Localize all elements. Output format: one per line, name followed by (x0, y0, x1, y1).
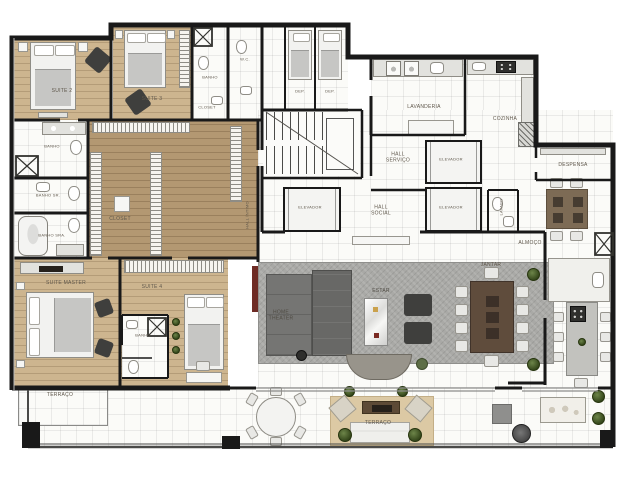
room-label-elevador-social-1: ELEVADOR (298, 206, 322, 211)
plant (592, 412, 605, 425)
room-label-banho-sra: BANHO SRA. (38, 234, 65, 239)
wardrobe (179, 30, 190, 88)
pillow (34, 45, 54, 56)
sink (36, 182, 50, 192)
bed (30, 42, 76, 110)
bed (124, 30, 166, 88)
island-cooktop (570, 306, 586, 322)
stool (600, 312, 611, 322)
plant (527, 268, 540, 281)
blanket (128, 53, 162, 85)
desk (186, 372, 222, 383)
plant (527, 358, 540, 371)
chair (550, 178, 563, 188)
room-label-closet-suite-3: CLOSET (198, 106, 216, 111)
pillow (29, 328, 40, 356)
toilet (68, 186, 80, 201)
plant (408, 428, 422, 442)
room-label-estar: ESTAR (372, 289, 390, 295)
pillow (206, 297, 224, 308)
stool (574, 378, 588, 388)
room-label-elevador-social-2: ELEVADOR (439, 206, 463, 211)
blanket (188, 324, 220, 366)
washer (386, 61, 401, 76)
room-label-dep-2: DEP. (325, 90, 335, 95)
decor (374, 333, 379, 338)
hall-console (352, 236, 410, 245)
centerpiece (486, 312, 499, 323)
stool (600, 332, 611, 342)
plant (397, 386, 408, 397)
staircase (263, 110, 360, 176)
dryer (404, 61, 419, 76)
floor-lamp (296, 350, 307, 361)
chair (455, 340, 468, 352)
plant (172, 332, 180, 340)
barbecue-counter (540, 397, 586, 423)
bowl (578, 338, 586, 346)
room-label-dep-1: DEP. (295, 90, 305, 95)
sink (503, 216, 514, 227)
placemat (573, 197, 583, 207)
room-label-despensa: DESPENSA (558, 163, 587, 169)
room-label-suite-master: SUITE MASTER (46, 281, 86, 287)
room-label-jantar: JANTAR (481, 263, 502, 269)
single-bed (318, 30, 342, 80)
tv-panel (252, 266, 258, 312)
pantry-shelf (540, 148, 606, 155)
room-label-suite-3: SUITE 3 (142, 97, 163, 103)
room-label-banho-sr: BANHO SR. (36, 194, 60, 199)
pillow (127, 33, 146, 43)
pillow (55, 45, 75, 56)
desk-chair (196, 361, 210, 371)
stool (600, 352, 611, 362)
bed (26, 292, 94, 358)
chair (550, 231, 563, 241)
room-label-elevador-servico: ELEVADOR (439, 158, 463, 163)
room-label-banho-suite-2: BANHO (44, 145, 59, 150)
toilet (128, 360, 139, 374)
nightstand (18, 42, 28, 52)
terrace-round-table (256, 397, 296, 437)
toilet (198, 56, 209, 70)
room-label-banho-suite-3: BANHO (202, 76, 217, 81)
room-label-cozinha: COZINHA (493, 117, 517, 123)
kitchen-sink (472, 62, 486, 71)
decor (373, 307, 378, 312)
toilet (68, 218, 80, 233)
blanket (54, 298, 91, 352)
terrace-cabinet (492, 404, 512, 424)
coffee-table (364, 298, 388, 346)
dining-table (470, 281, 514, 353)
nightstand (115, 30, 123, 39)
bed-bench (38, 112, 68, 118)
laundry-sink (430, 62, 444, 74)
wardrobe (124, 260, 224, 273)
grill (512, 424, 531, 443)
room-label-suite-4: SUITE 4 (142, 285, 163, 291)
nightstand (78, 42, 88, 52)
armchair (404, 322, 432, 344)
stair-treads (266, 146, 324, 174)
stair-treads (266, 112, 324, 140)
placemat (553, 213, 563, 223)
breakfast-table (546, 189, 588, 229)
chair (570, 231, 583, 241)
kitchen-counter-side (521, 77, 534, 127)
chair (270, 437, 282, 446)
room-label-almoco: ALMOÇO (518, 241, 541, 247)
wardrobe (92, 122, 190, 133)
tv (372, 405, 392, 412)
room-label-hall-servico: HALL SERVIÇO (382, 152, 414, 164)
pillow (29, 297, 40, 325)
stair-landing (326, 118, 354, 170)
chair (516, 286, 529, 298)
double-vanity (42, 122, 86, 135)
stool (553, 312, 564, 322)
room-label-home-theater: HOME THEATER (265, 310, 297, 322)
room-label-banho-suite-4: BANHO (135, 334, 150, 339)
armchair (404, 294, 432, 316)
chair (270, 387, 282, 396)
room-label-hall-intimo: HALL ÍNTIMO (246, 201, 251, 229)
wardrobe (90, 152, 102, 256)
room-label-closet-master: CLOSET (109, 217, 131, 223)
room-label-hall-social: HALL SOCIAL (365, 205, 397, 217)
pillow (293, 33, 310, 42)
chair (516, 304, 529, 316)
sink (126, 320, 138, 329)
dresser (20, 262, 84, 274)
pillow (187, 297, 205, 308)
side-table (416, 358, 428, 370)
pillow (147, 33, 166, 43)
terrace-tv-cabinet (362, 401, 400, 414)
plant (172, 346, 180, 354)
gourmet-sink (592, 272, 604, 288)
toilet (236, 40, 247, 54)
room-label-terraco-left: TERRAÇO (47, 393, 73, 399)
nightstand (167, 30, 175, 39)
chair (455, 322, 468, 334)
room-label-terraco-main: TERRAÇO (365, 421, 391, 427)
wardrobe (150, 152, 162, 256)
nightstand (16, 282, 25, 290)
room-label-suite-2: SUITE 2 (52, 89, 73, 95)
room-label-lavanderia: LAVANDERIA (407, 105, 440, 111)
stool (553, 352, 564, 362)
centerpiece (486, 296, 499, 307)
room-label-wc: W.C. (240, 58, 250, 63)
cooktop (496, 61, 516, 73)
blanket (321, 50, 340, 77)
sink (240, 86, 252, 95)
placemat (553, 197, 563, 207)
centerpiece (486, 328, 499, 339)
chair (455, 286, 468, 298)
plant (172, 318, 180, 326)
wardrobe (230, 126, 242, 202)
blanket (291, 50, 310, 77)
nightstand (16, 360, 25, 368)
room-label-lavabo: LAVABO (500, 199, 505, 216)
plant (344, 386, 355, 397)
placemat (573, 213, 583, 223)
tv (39, 266, 63, 272)
refrigerator (518, 122, 535, 147)
chair (516, 340, 529, 352)
bed (184, 294, 224, 370)
sofa-chaise (312, 270, 352, 356)
single-bed (288, 30, 312, 80)
plant (338, 428, 352, 442)
sink (211, 96, 223, 105)
chair (484, 355, 499, 367)
chair (455, 304, 468, 316)
plant (592, 390, 605, 403)
closet-pouf (114, 196, 130, 212)
toilet (70, 140, 82, 155)
chair (516, 322, 529, 334)
chair (570, 178, 583, 188)
laundry-cabinet (408, 120, 454, 136)
floor-plan: SUITE 2 SUITE 3 CLOSET BANHO W.C. DEP. D… (0, 0, 635, 480)
vanity (56, 244, 84, 256)
stool (553, 332, 564, 342)
pillow (323, 33, 340, 42)
